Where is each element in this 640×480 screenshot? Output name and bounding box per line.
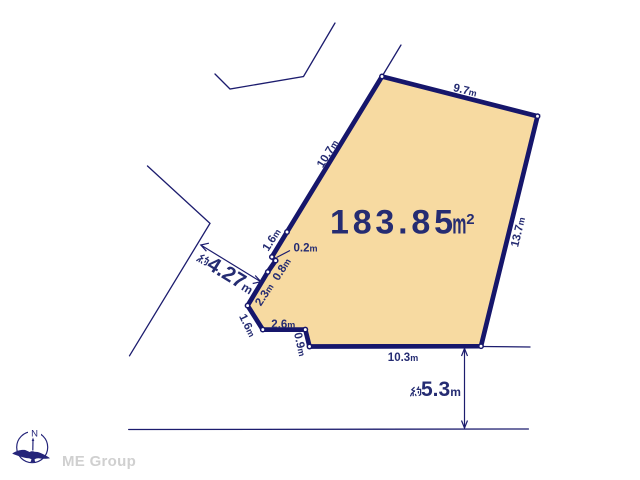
svg-text:5.3m: 5.3m (421, 378, 461, 401)
svg-text:m: m (452, 208, 466, 240)
svg-text:10.3m: 10.3m (388, 352, 418, 364)
svg-text:183.85: 183.85 (330, 204, 457, 242)
svg-text:0.2m: 0.2m (293, 243, 317, 255)
svg-text:ME Group: ME Group (62, 453, 136, 470)
svg-text:2.6m: 2.6m (271, 319, 295, 331)
svg-text:N: N (31, 429, 38, 440)
svg-text:2: 2 (466, 211, 474, 228)
